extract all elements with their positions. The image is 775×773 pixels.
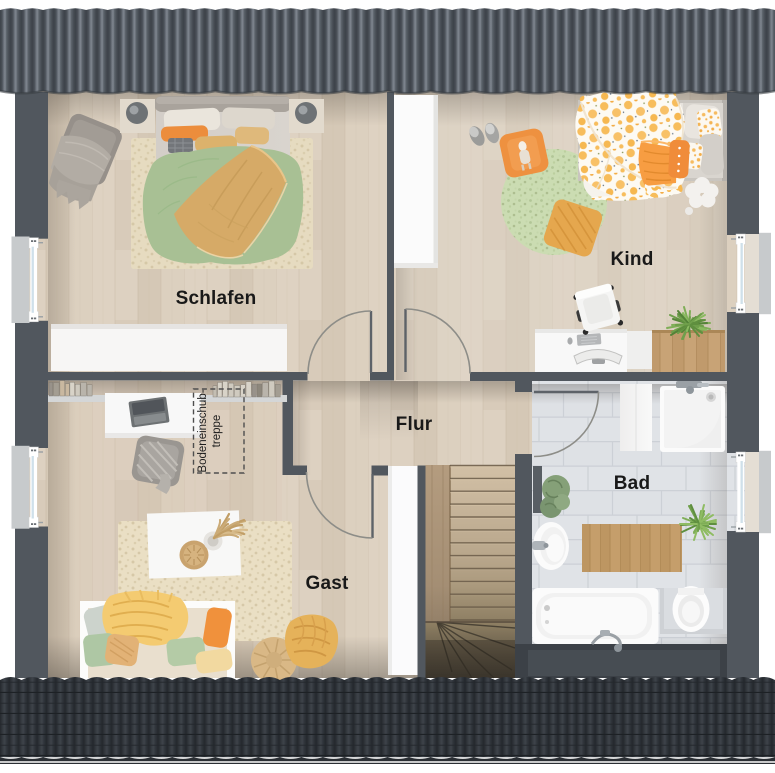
svg-text:Flur: Flur <box>396 414 433 435</box>
svg-text:Bodeneinschub-: Bodeneinschub- <box>197 389 209 472</box>
svg-text:treppe: treppe <box>211 415 223 448</box>
svg-text:Gast: Gast <box>305 573 349 594</box>
svg-text:Kind: Kind <box>610 249 653 270</box>
svg-text:Schlafen: Schlafen <box>176 288 257 309</box>
svg-text:Bad: Bad <box>614 473 651 494</box>
